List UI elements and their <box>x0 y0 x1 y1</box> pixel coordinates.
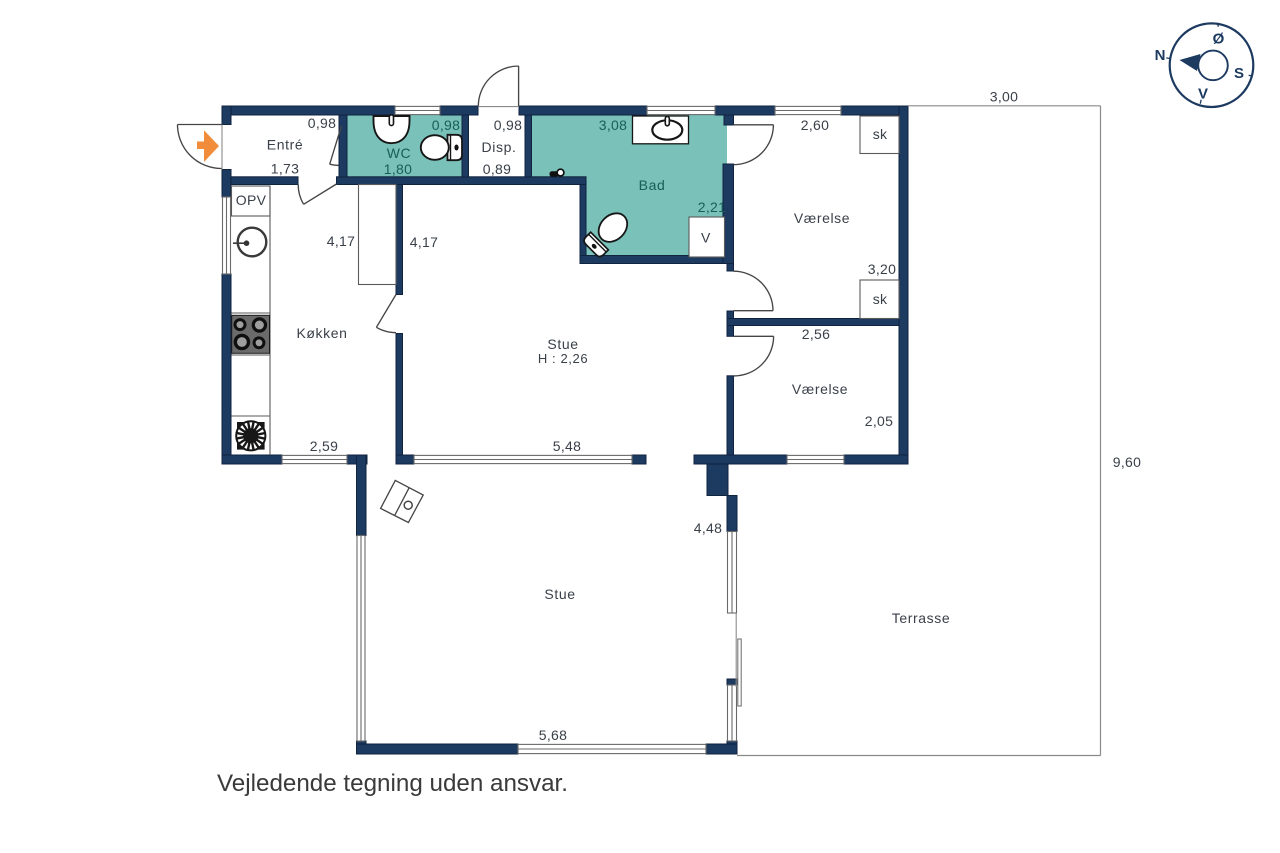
svg-text:S: S <box>1234 65 1244 82</box>
svg-text:1,80: 1,80 <box>384 161 412 177</box>
svg-text:2,60: 2,60 <box>801 117 829 133</box>
svg-text:WC: WC <box>387 145 412 161</box>
svg-text:0,98: 0,98 <box>308 115 336 131</box>
svg-text:Bad: Bad <box>639 177 666 193</box>
svg-text:H : 2,26: H : 2,26 <box>538 351 588 366</box>
svg-text:Stue: Stue <box>547 336 578 352</box>
svg-text:V: V <box>1198 86 1208 103</box>
svg-text:sk: sk <box>873 126 888 142</box>
svg-text:OPV: OPV <box>236 192 267 208</box>
svg-text:5,48: 5,48 <box>553 438 581 454</box>
svg-text:Vejledende tegning uden ansvar: Vejledende tegning uden ansvar. <box>217 770 568 797</box>
svg-text:0,89: 0,89 <box>483 161 511 177</box>
svg-text:0,98: 0,98 <box>494 117 522 133</box>
svg-text:2,05: 2,05 <box>865 413 893 429</box>
svg-text:Disp.: Disp. <box>482 139 517 155</box>
svg-text:sk: sk <box>873 291 888 307</box>
svg-text:3,00: 3,00 <box>990 89 1018 105</box>
svg-text:N: N <box>1155 47 1166 64</box>
svg-text:3,08: 3,08 <box>599 117 627 133</box>
svg-text:3,20: 3,20 <box>868 261 896 277</box>
svg-text:Terrasse: Terrasse <box>892 610 950 626</box>
svg-text:4,48: 4,48 <box>694 520 722 536</box>
svg-text:4,17: 4,17 <box>327 233 355 249</box>
svg-text:9,60: 9,60 <box>1113 454 1141 470</box>
svg-text:4,17: 4,17 <box>410 234 438 250</box>
svg-text:Stue: Stue <box>544 586 575 602</box>
svg-text:Entré: Entré <box>267 137 303 153</box>
svg-text:Værelse: Værelse <box>794 210 850 226</box>
svg-text:Køkken: Køkken <box>296 325 347 341</box>
svg-text:V: V <box>701 230 711 246</box>
svg-text:2,56: 2,56 <box>802 326 830 342</box>
svg-text:1,73: 1,73 <box>271 161 299 177</box>
svg-text:Værelse: Værelse <box>792 381 848 397</box>
svg-text:0,98: 0,98 <box>432 117 460 133</box>
svg-text:Ø: Ø <box>1213 31 1225 48</box>
svg-text:2,21: 2,21 <box>698 199 726 215</box>
svg-text:5,68: 5,68 <box>539 727 567 743</box>
svg-text:2,59: 2,59 <box>310 438 338 454</box>
